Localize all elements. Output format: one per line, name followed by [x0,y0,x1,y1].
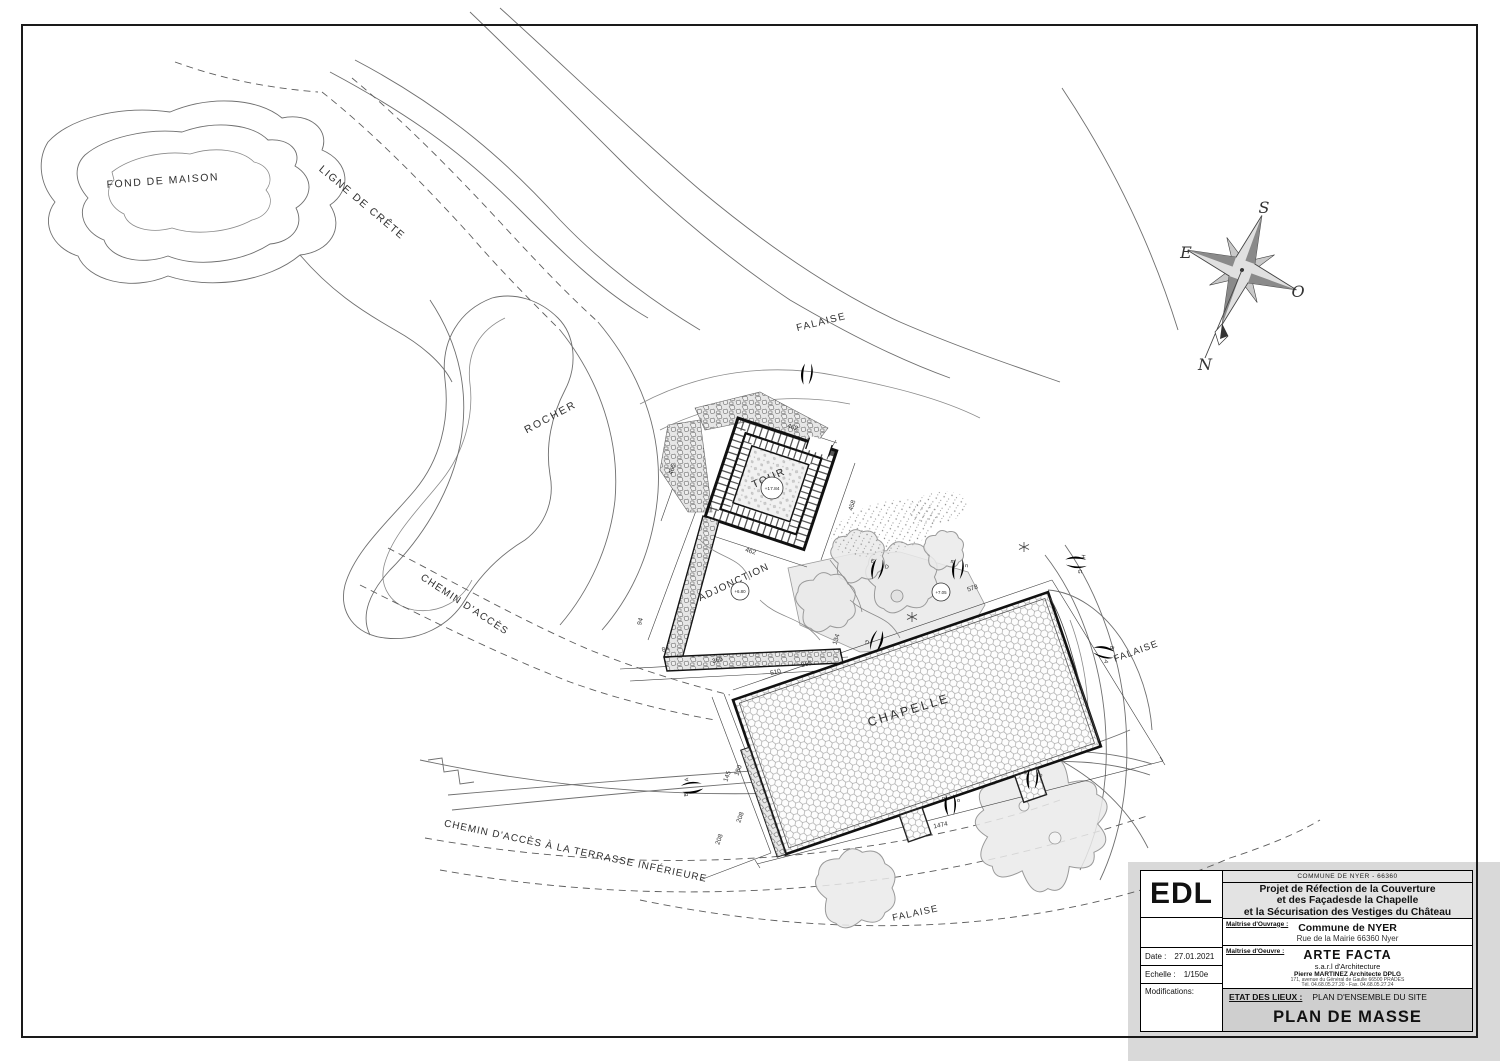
label-falaise-haut: FALAISE [795,311,847,334]
tree-canopy [816,849,896,928]
rock-texture [695,392,828,445]
tour-elevation: +17.84 [761,477,783,499]
dimension-value: 510 [770,668,783,678]
photo-marker-part [808,363,814,384]
contour-lines-part [1062,88,1178,330]
dimension-value: 208 [714,833,724,846]
titleblock: EDL Date : 27.01.2021 Echelle : 1/150e M… [1140,870,1473,1032]
dimension-lines-part [700,853,771,880]
drawing-title: PLAN DE MASSE [1229,1008,1466,1027]
label-chemin-acces: CHEMIN D'ACCÈS [418,571,511,638]
titleblock-right-column: COMMUNE DE NYER - 66360 Projet de Réfect… [1223,871,1472,1031]
modifications-row: Modifications: [1141,983,1222,1030]
dashed-terrain-lines-part [322,92,560,330]
photo-marker-letter: H [1079,554,1085,559]
phase-label: ETAT DES LIEUX : [1229,992,1302,1002]
survey-star-part [1019,542,1029,552]
contour-lines-part [560,330,616,625]
dimension-value: 458 [848,499,858,512]
label-ligne-de-crete: LIGNE DE CRÊTE [317,162,408,242]
label-falaise-droite: FALAISE [1112,638,1160,664]
contour-lines-part [300,255,452,382]
contour-lines-part [330,72,648,318]
photo-marker [800,362,815,385]
label-fond-de-maison: FOND DE MAISON [106,171,219,191]
firm-subtitle: s.a.r.l d'Architecture [1223,962,1472,971]
contour-lines-part [640,370,980,418]
ouvrage-label: Maîtrise d'Ouvrage : [1226,921,1288,928]
commune-line: COMMUNE DE NYER - 66360 [1223,871,1472,882]
adjonction-walls-part [664,649,843,671]
dimension-value: 145 [722,770,732,783]
scale-label: Echelle : [1145,970,1176,979]
dimension-value: 462 [744,547,757,557]
compass-rose: S E O N [1168,196,1317,374]
contour-lines-part [109,150,271,232]
tree-trunk [1049,832,1061,844]
phase-title: PLAN D'ENSEMBLE DU SITE [1312,992,1427,1002]
terrasse-elevation: +7.05 [932,583,950,601]
photo-marker: HG [1064,553,1088,574]
label-chemin-terrasse: CHEMIN D'ACCÈS À LA TERRASSE INFÉRIEURE [443,816,708,885]
dimension-value: 180 [733,764,743,777]
dashed-terrain-lines-part [352,78,598,322]
terrasse-elevation-value: +7.05 [935,590,947,595]
titleblock-left-column: EDL Date : 27.01.2021 Echelle : 1/150e M… [1141,871,1223,1031]
date-row: Date : 27.01.2021 [1141,947,1222,965]
photo-marker-letter: p [1024,769,1028,775]
photo-marker-letter: o [957,798,960,804]
contour-lines-part [428,758,474,784]
scale-value: 1/150e [1184,970,1208,979]
site-plan-sheet: S E O N FOND DE MAISONLIGNE DE CRÊTEFALA… [0,0,1500,1061]
drawing-code: EDL [1141,871,1222,917]
dimension-value: 365 [801,660,814,670]
well-circle [891,590,903,602]
label-falaise-bas: FALAISE [891,903,939,924]
project-title-line-2: et des Façadesde la Chapelle [1223,895,1472,907]
oeuvre-label: Maîtrise d'Oeuvre : [1226,948,1284,955]
contour-lines-part [598,322,658,630]
contour-lines-part [470,12,950,378]
dashed-terrain-lines-part [175,62,318,92]
compass-north: N [1197,355,1213,374]
dashed-terrain-lines-part [425,800,1060,860]
contour-lines-part [77,125,309,262]
compass-rose-part [1205,270,1242,358]
dimension-value: 94 [636,617,645,626]
client-address: Rue de la Mairie 66360 Nyer [1223,934,1472,943]
adjonction-elevation: +6.80 [731,582,749,600]
phase-line: ETAT DES LIEUX : PLAN D'ENSEMBLE DU SITE [1229,992,1466,1002]
empty-cell [1141,917,1222,947]
modifications-label: Modifications: [1145,987,1194,996]
rock-texture [660,420,712,512]
compass-south: S [1259,198,1270,217]
photo-marker-letter: G [1076,569,1082,574]
phase-cell: ETAT DES LIEUX : PLAN D'ENSEMBLE DU SITE… [1223,988,1472,1031]
tree-canopy [924,530,964,569]
photo-marker-part [800,363,807,384]
dimension-value: 208 [735,811,745,824]
maitrise-ouvrage-cell: Maîtrise d'Ouvrage : Commune de NYER Rue… [1223,918,1472,945]
photo-marker-letter: o [1039,773,1043,779]
photo-marker-letter: n [942,796,945,802]
date-value: 27.01.2021 [1174,952,1214,961]
contour-lines-part [355,60,700,330]
project-title: Projet de Réfection de la Couverture et … [1223,882,1472,918]
dimension-value: 1474 [933,821,949,831]
contour-lines-part [500,8,1060,382]
date-label: Date : [1145,952,1166,961]
scale-row: Echelle : 1/150e [1141,965,1222,983]
adjonction-elevation-value: +6.80 [734,589,746,594]
maitrise-oeuvre-cell: Maîtrise d'Oeuvre : ARTE FACTA s.a.r.l d… [1223,945,1472,988]
compass-west: O [1291,282,1304,301]
photo-marker-part [1066,564,1087,569]
contour-lines-part [343,296,573,639]
project-title-line-1: Projet de Réfection de la Couverture [1223,884,1472,896]
photo-marker-letter: n [965,563,969,569]
contour-lines-part [366,300,464,635]
photo-marker-letter: A [684,777,690,782]
compass-east: E [1179,243,1192,262]
tour-elevation-value: +17.84 [765,486,780,492]
